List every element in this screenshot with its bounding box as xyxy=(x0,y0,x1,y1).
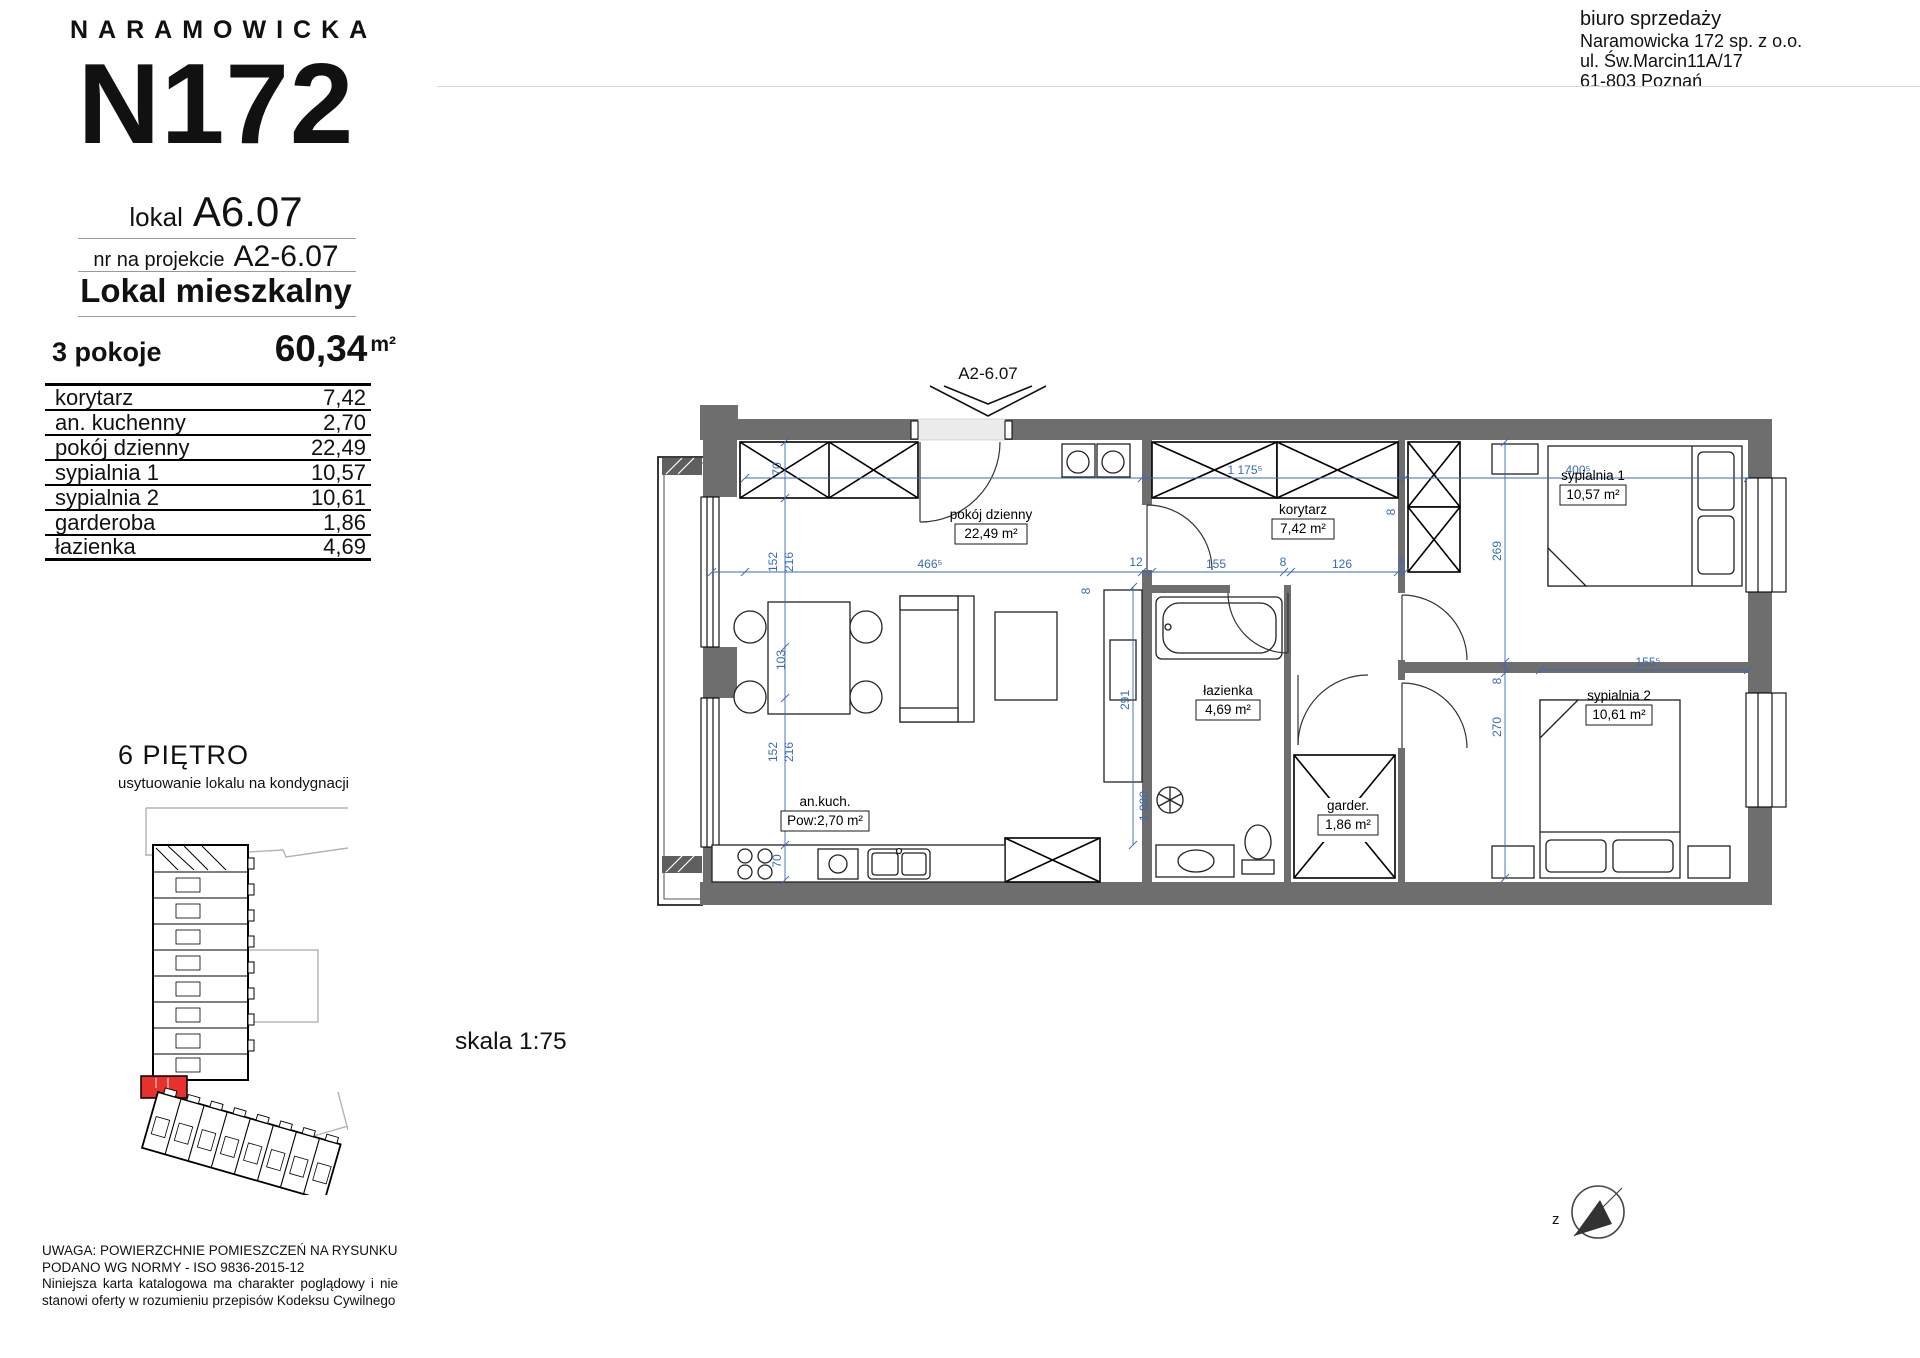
floor-plan-drawing: 466⁵ 12 155 8 126 8 1 175⁵ 400⁵ 155⁵ 70 … xyxy=(0,0,1920,1358)
dim-152a: 152 xyxy=(766,552,780,572)
svg-text:7,42 m²: 7,42 m² xyxy=(1280,521,1326,536)
dim-216b: 216 xyxy=(782,742,796,762)
unit-marker-label: A2-6.07 xyxy=(958,364,1018,383)
window-right-1 xyxy=(1746,478,1786,592)
label-bedroom2: sypialnia 2 10,61 m² xyxy=(1586,688,1652,725)
shaft-column xyxy=(1408,442,1460,572)
dim-8c: 8 xyxy=(1490,677,1504,684)
dim-70a: 70 xyxy=(770,462,784,476)
fan-symbol xyxy=(1157,787,1183,813)
svg-text:10,57 m²: 10,57 m² xyxy=(1566,487,1620,502)
label-hall: korytarz 7,42 m² xyxy=(1272,502,1334,539)
svg-text:pokój dzienny: pokój dzienny xyxy=(950,507,1033,522)
marker-chevron-inner xyxy=(944,386,1032,404)
window-left-2 xyxy=(701,698,719,847)
coffee-table xyxy=(995,612,1057,700)
tv-cabinet xyxy=(1104,590,1142,782)
dim-8e: 8 xyxy=(1079,587,1093,594)
svg-text:sypialnia 2: sypialnia 2 xyxy=(1587,688,1651,703)
living-wardrobe xyxy=(740,442,918,498)
dim-70b: 70 xyxy=(770,854,784,868)
balcony-divider-top xyxy=(662,458,702,475)
entrance-opening xyxy=(911,419,1012,440)
label-kitchen: an.kuch. Pow:2,70 m² xyxy=(781,794,869,831)
washbasin xyxy=(1156,845,1234,877)
bedroom1-door xyxy=(1402,595,1467,660)
svg-text:22,49 m²: 22,49 m² xyxy=(964,526,1018,541)
dim-8d: 8 xyxy=(1384,508,1398,515)
dim-126: 126 xyxy=(1332,557,1352,571)
dim-1175: 1 175⁵ xyxy=(1227,463,1262,477)
living-door xyxy=(1147,505,1212,570)
dim-466: 466⁵ xyxy=(918,557,943,571)
compass-needle xyxy=(1574,1200,1612,1236)
dim-103: 103 xyxy=(774,650,788,670)
compass: z xyxy=(1552,1186,1624,1238)
svg-text:1,86 m²: 1,86 m² xyxy=(1325,817,1371,832)
nightstand-1 xyxy=(1492,444,1538,474)
balcony xyxy=(658,457,703,905)
label-bath: łazienka 4,69 m² xyxy=(1196,683,1260,720)
catalog-card-page: NARAMOWICKA N172 lokal A6.07 nr na proje… xyxy=(0,0,1920,1358)
compass-direction-label: z xyxy=(1552,1211,1560,1228)
dim-8b: 8 xyxy=(1399,555,1406,569)
dim-8a: 8 xyxy=(1280,555,1287,569)
dim-1020: 1 020 xyxy=(1137,791,1151,821)
bed-2 xyxy=(1540,700,1680,878)
dim-152b: 152 xyxy=(766,742,780,762)
nightstand-2 xyxy=(1492,846,1534,878)
dim-269: 269 xyxy=(1490,541,1504,561)
label-wardrobe: garder. 1,86 m² xyxy=(1314,798,1384,842)
marker-chevron-outer xyxy=(930,386,1046,416)
label-bedroom1: sypialnia 1 10,57 m² xyxy=(1560,468,1626,505)
dim-216a: 216 xyxy=(782,552,796,572)
dim-155b: 155⁵ xyxy=(1636,655,1661,669)
bedroom2-door xyxy=(1402,683,1467,748)
label-living: pokój dzienny 22,49 m² xyxy=(950,507,1033,544)
sofa xyxy=(900,596,974,722)
garderoba-door xyxy=(1298,675,1368,745)
nightstand-3 xyxy=(1688,846,1730,878)
window-right-2 xyxy=(1746,693,1786,807)
washer-dryer xyxy=(1062,444,1130,477)
kitchen-counter xyxy=(712,845,1005,882)
dim-12: 12 xyxy=(1129,555,1143,569)
bathtub xyxy=(1156,597,1282,659)
svg-text:4,69 m²: 4,69 m² xyxy=(1205,702,1251,717)
svg-text:korytarz: korytarz xyxy=(1279,502,1327,517)
svg-text:garder.: garder. xyxy=(1327,798,1369,813)
dining-table xyxy=(734,602,882,714)
kitchen-shaft xyxy=(1005,838,1100,882)
dim-155: 155 xyxy=(1206,557,1226,571)
svg-text:Pow:2,70 m²: Pow:2,70 m² xyxy=(787,813,863,828)
svg-text:sypialnia 1: sypialnia 1 xyxy=(1561,468,1625,483)
balcony-divider-bottom xyxy=(662,856,702,873)
svg-text:łazienka: łazienka xyxy=(1203,683,1253,698)
dim-270: 270 xyxy=(1490,717,1504,737)
hall-wardrobe xyxy=(1152,442,1398,498)
toilet xyxy=(1242,825,1274,874)
unit-marker: A2-6.07 xyxy=(930,364,1046,416)
dim-291: 291 xyxy=(1118,690,1132,710)
svg-text:10,61 m²: 10,61 m² xyxy=(1592,707,1646,722)
svg-text:an.kuch.: an.kuch. xyxy=(799,794,850,809)
